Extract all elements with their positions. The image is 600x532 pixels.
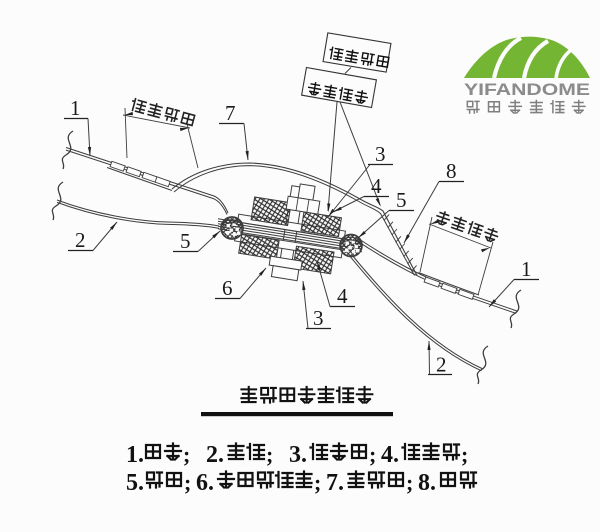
svg-text:2: 2 [436, 353, 447, 377]
svg-text:6.: 6. [196, 470, 214, 496]
svg-text:2.: 2. [206, 442, 224, 468]
svg-text:;: ; [461, 442, 468, 467]
svg-text:5.: 5. [126, 470, 144, 496]
svg-text:4: 4 [371, 174, 382, 198]
svg-text:4.: 4. [381, 442, 399, 468]
svg-text:3: 3 [313, 306, 324, 330]
svg-text:YIFANDOME: YIFANDOME [464, 81, 590, 99]
svg-text:3: 3 [375, 142, 386, 166]
svg-text:;: ; [369, 442, 376, 467]
svg-text:5: 5 [180, 229, 191, 253]
svg-text:3.: 3. [289, 442, 307, 468]
svg-text:;: ; [314, 470, 321, 495]
svg-text:;: ; [406, 470, 413, 495]
svg-text:6: 6 [222, 276, 233, 300]
svg-text:;: ; [266, 442, 273, 467]
svg-text:2: 2 [75, 228, 86, 252]
svg-text:8: 8 [446, 159, 457, 183]
svg-text:1: 1 [521, 257, 532, 281]
svg-text:8.: 8. [418, 470, 436, 496]
svg-text:;: ; [183, 442, 190, 467]
svg-text:4: 4 [337, 284, 348, 308]
svg-text:7: 7 [225, 101, 236, 125]
svg-text:1: 1 [70, 96, 81, 120]
svg-text:;: ; [184, 470, 191, 495]
svg-text:5: 5 [396, 188, 407, 212]
svg-text:7.: 7. [326, 470, 344, 496]
svg-text:1.: 1. [126, 442, 144, 468]
